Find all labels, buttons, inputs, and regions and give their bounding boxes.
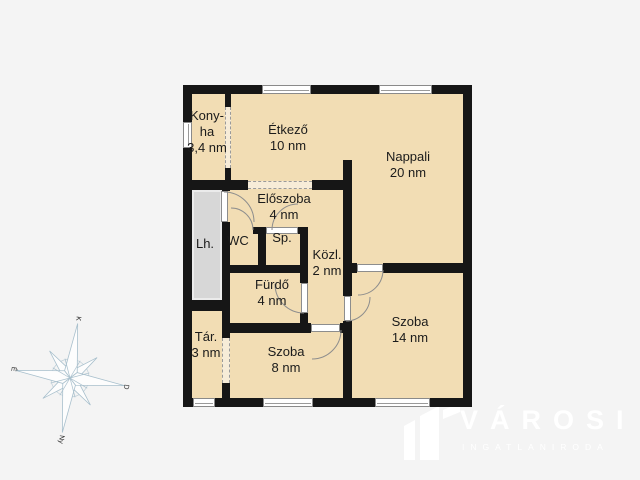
door-arc-room8: [312, 330, 341, 359]
room-label-dining: Étkező 10 nm: [268, 122, 308, 154]
room-area: 10 nm: [268, 138, 308, 154]
room-name: WC: [227, 233, 249, 249]
room-name: Tár.: [192, 329, 221, 345]
door-arc-wc: [231, 208, 253, 230]
room-name: Szoba: [268, 344, 305, 360]
door-arc-room14-living: [358, 270, 383, 295]
room-area: 3 nm: [192, 345, 221, 361]
room-name: Kony-: [187, 108, 227, 124]
room-label-pantry: Sp.: [272, 230, 292, 246]
door-arc-room14-hall: [346, 297, 370, 321]
room-name: Lh.: [196, 236, 214, 252]
room-label-corridor: Közl. 2 nm: [313, 247, 342, 279]
room-name: Szoba: [392, 314, 429, 330]
room-label-bathroom: Fürdő 4 nm: [255, 277, 289, 309]
door-arcs: [0, 0, 640, 480]
room-area: 3,4 nm: [187, 140, 227, 156]
floor-plan-page: VÁROSI INGATLANIRODA K: [0, 0, 640, 480]
room-name: ha: [187, 124, 227, 140]
room-area: 4 nm: [255, 293, 289, 309]
room-name: Sp.: [272, 230, 292, 246]
room-name: Előszoba: [257, 191, 310, 207]
room-label-storage: Tár. 3 nm: [192, 329, 221, 361]
room-label-room8: Szoba 8 nm: [268, 344, 305, 376]
room-name: Nappali: [386, 149, 430, 165]
room-label-hall: Előszoba 4 nm: [257, 191, 310, 223]
room-area: 2 nm: [313, 263, 342, 279]
room-area: 20 nm: [386, 165, 430, 181]
room-label-wc: WC: [227, 233, 249, 249]
room-area: 8 nm: [268, 360, 305, 376]
room-name: Étkező: [268, 122, 308, 138]
room-name: Fürdő: [255, 277, 289, 293]
room-area: 4 nm: [257, 207, 310, 223]
room-label-living: Nappali 20 nm: [386, 149, 430, 181]
room-label-kitchen: Kony- ha 3,4 nm: [187, 108, 227, 156]
room-name: Közl.: [313, 247, 342, 263]
room-label-stairwell: Lh.: [196, 236, 214, 252]
room-area: 14 nm: [392, 330, 429, 346]
room-label-room14: Szoba 14 nm: [392, 314, 429, 346]
